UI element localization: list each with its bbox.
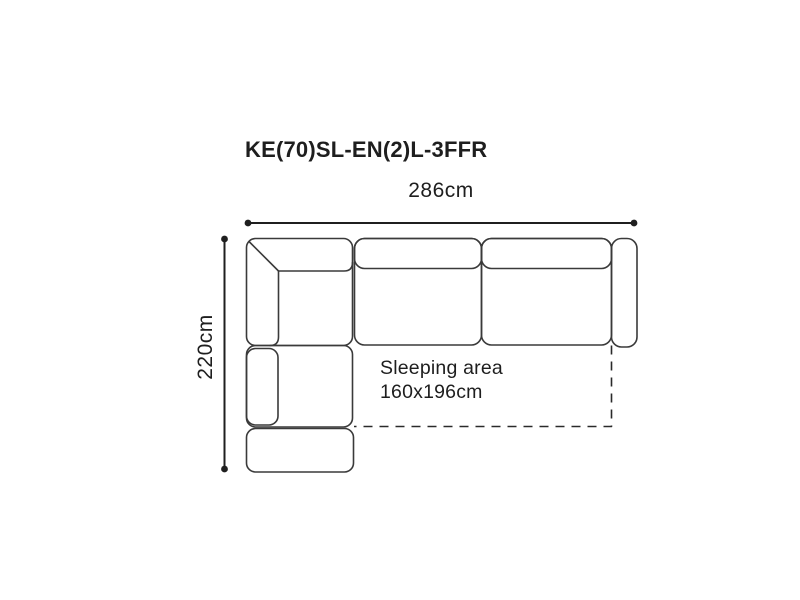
chaise-section xyxy=(247,346,354,473)
corner-section xyxy=(247,239,353,346)
sofa-line-art xyxy=(0,0,800,600)
chaise-side-cushion xyxy=(247,349,279,426)
seat-right-back-cushion xyxy=(482,239,612,269)
height-dimension-label: 220cm xyxy=(194,314,218,380)
seat-middle-body xyxy=(355,239,482,346)
dimension-endpoint-dot xyxy=(221,466,228,473)
corner-side-seam xyxy=(270,271,279,346)
seat-section-middle xyxy=(355,239,482,346)
width-dimension-label: 286cm xyxy=(408,179,474,203)
corner-diagonal-seam xyxy=(250,242,279,271)
chaise-body xyxy=(247,346,353,428)
sofa-dimension-diagram: KE(70)SL-EN(2)L-3FFR 286cm 220cm Sleepin… xyxy=(0,0,800,600)
seat-right-body xyxy=(482,239,612,346)
sleeping-area-label-line2: 160x196cm xyxy=(380,380,503,404)
right-armrest xyxy=(612,239,638,348)
seat-section-right xyxy=(482,239,612,346)
sleeping-area-label: Sleeping area 160x196cm xyxy=(380,356,503,404)
dimension-endpoint-dot xyxy=(245,220,252,227)
chaise-end-section xyxy=(247,429,354,473)
corner-backrest-seam xyxy=(279,263,353,272)
seat-middle-back-cushion xyxy=(355,239,482,269)
height-dimension xyxy=(221,236,228,473)
sleeping-area-label-line1: Sleeping area xyxy=(380,356,503,380)
dimension-endpoint-dot xyxy=(631,220,638,227)
product-title: KE(70)SL-EN(2)L-3FFR xyxy=(245,139,487,161)
dimension-endpoint-dot xyxy=(221,236,228,243)
width-dimension xyxy=(245,220,638,227)
